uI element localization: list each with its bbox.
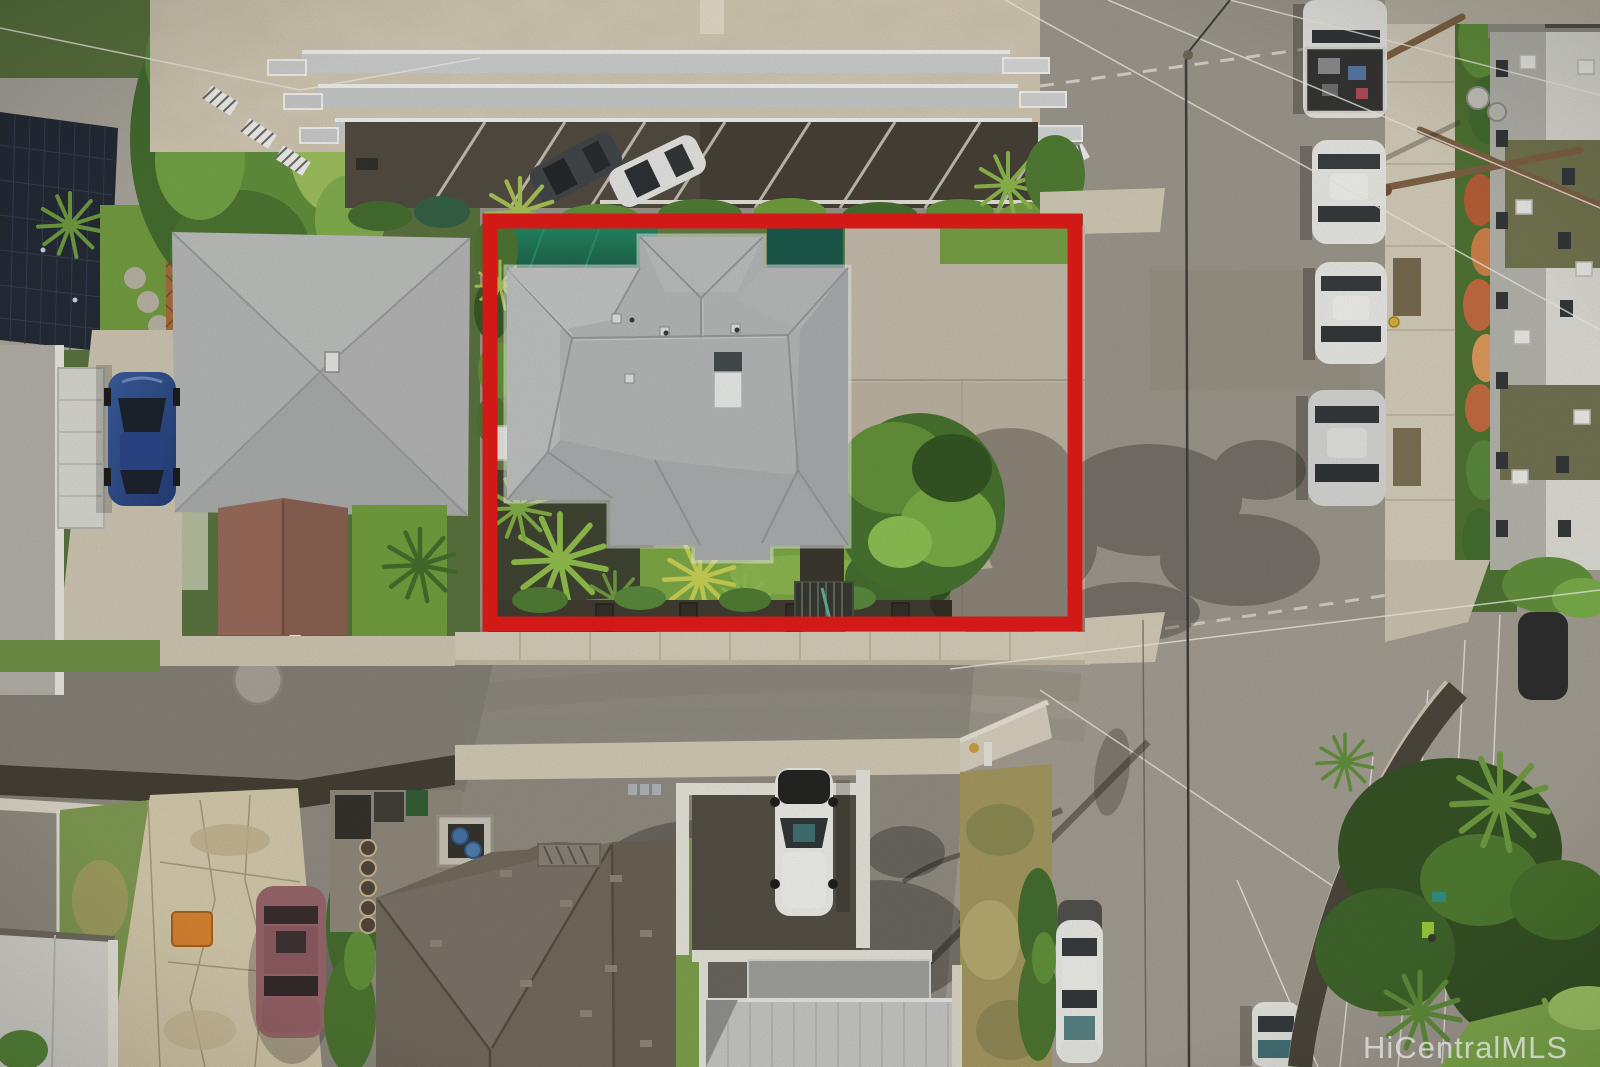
aerial-photo: HiCentralMLS xyxy=(0,0,1600,1067)
vignette xyxy=(0,0,1600,1067)
mls-watermark: HiCentralMLS xyxy=(1363,1030,1568,1065)
